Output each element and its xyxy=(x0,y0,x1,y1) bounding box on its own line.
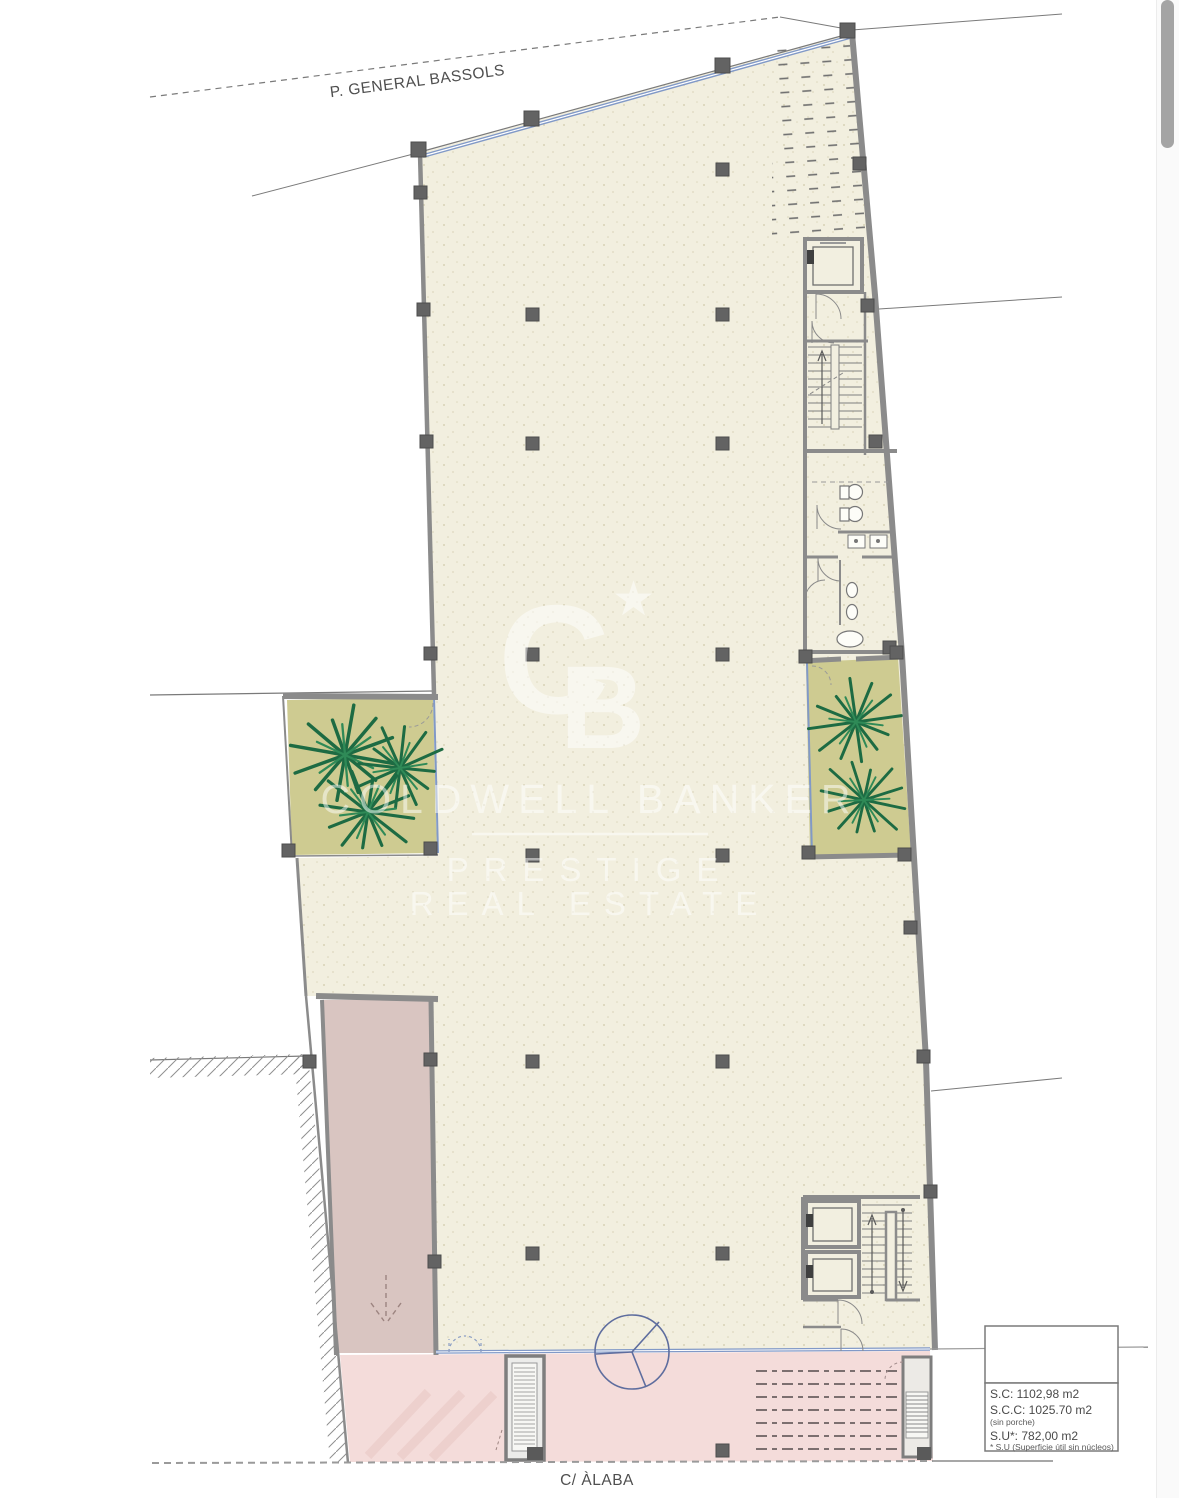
boundary-dashed-bottom xyxy=(152,1461,933,1463)
legend-line-su: S.U*: 782,00 m2 xyxy=(990,1429,1078,1443)
stair-top-stringer xyxy=(831,345,839,429)
porch-dash-field xyxy=(755,1362,905,1454)
elevator-bottom-1-stub xyxy=(806,1214,813,1227)
legend-line-note2: * S.U (Superficie útil sin núcleos) xyxy=(990,1442,1114,1452)
ramp-slab xyxy=(322,999,435,1353)
elevator-top-stub xyxy=(807,250,814,264)
ground-hatch-left xyxy=(150,1054,306,1078)
exterior-stair-right-column xyxy=(917,1447,931,1460)
porch-area xyxy=(340,1351,933,1462)
boundary-solid-topleft xyxy=(252,152,421,196)
boundary-line-right-upper xyxy=(879,297,1062,309)
watermark-tagline1: PRESTIGE xyxy=(447,851,734,888)
legend-box: S.C: 1102,98 m2 S.C.C: 1025.70 m2 (sin p… xyxy=(985,1326,1118,1452)
street-label-top: P. GENERAL BASSOLS xyxy=(329,62,506,101)
watermark-monogram-b: B xyxy=(560,642,645,774)
scrollbar-thumb[interactable] xyxy=(1161,0,1174,148)
legend-line-note1: (sin porche) xyxy=(990,1417,1035,1427)
legend-logo-box xyxy=(985,1326,1118,1383)
watermark-star-icon: ★ xyxy=(612,573,655,626)
floor-plan: P. GENERAL BASSOLS C/ ÀLABA S.C: 1102,98… xyxy=(0,0,1179,1498)
scrollbar-track[interactable] xyxy=(1156,0,1179,1498)
stair-bottom-stringer xyxy=(886,1212,896,1300)
boundary-line-right-lower xyxy=(931,1078,1062,1091)
elevator-bottom-2-stub xyxy=(806,1265,813,1278)
boundary-solid-topright xyxy=(780,14,1062,30)
floor-plan-page: P. GENERAL BASSOLS C/ ÀLABA S.C: 1102,98… xyxy=(0,0,1179,1498)
watermark-brand: COLDWELL BANKER xyxy=(320,776,859,822)
street-label-bottom: C/ ÀLABA xyxy=(560,1472,634,1489)
exterior-stair-left-column xyxy=(527,1447,543,1460)
legend-line-scc: S.C.C: 1025.70 m2 xyxy=(990,1403,1092,1417)
watermark-tagline2: REAL ESTATE xyxy=(410,885,771,922)
legend-line-sc: S.C: 1102,98 m2 xyxy=(990,1387,1079,1401)
